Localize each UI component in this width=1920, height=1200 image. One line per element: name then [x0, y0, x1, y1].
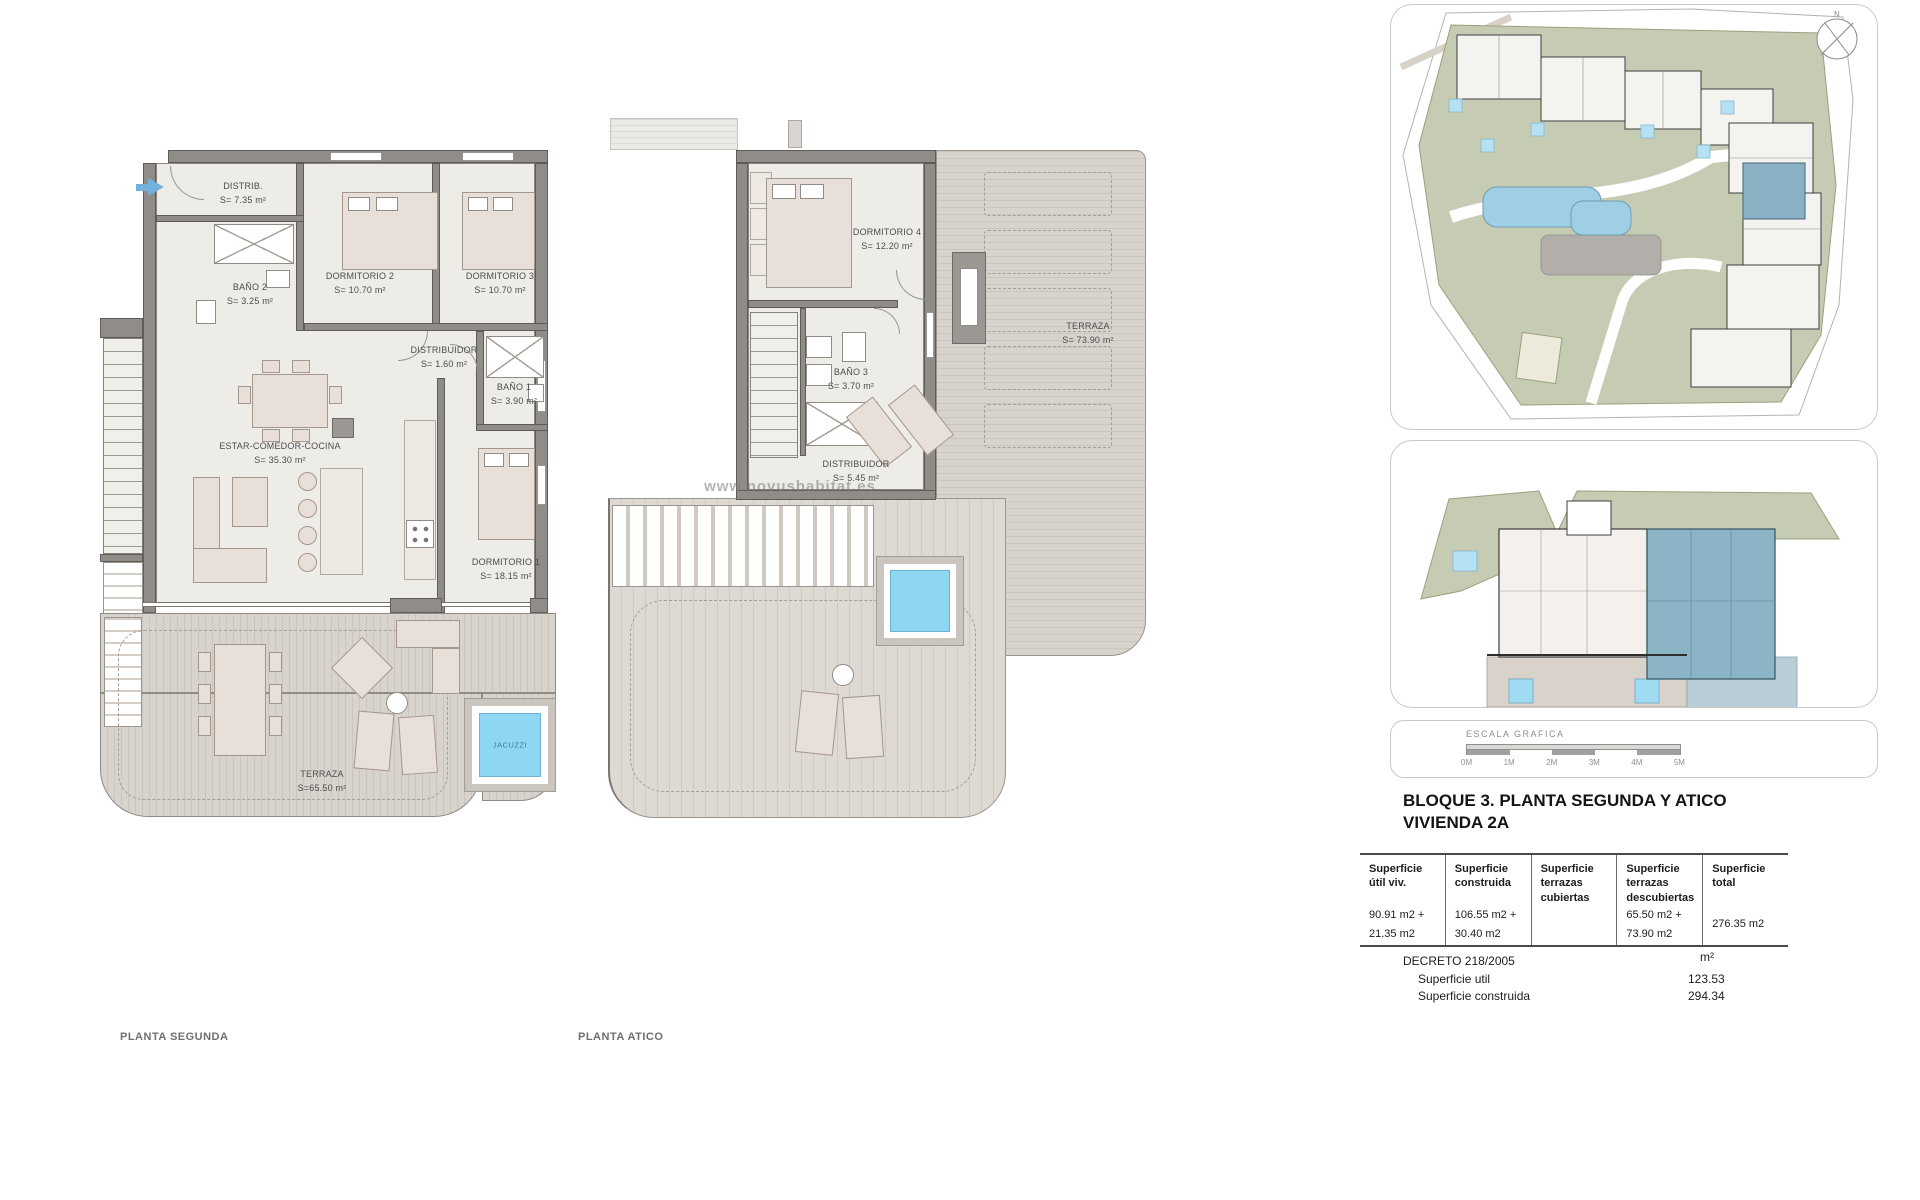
- table-header: Superficie terrazas descubiertas: [1626, 862, 1697, 906]
- scale-tick: 1M: [1504, 758, 1515, 767]
- scale-segment: [1552, 750, 1595, 755]
- decreto-row-label: Superficie construida: [1418, 989, 1530, 1003]
- table-values: 276.35 m2: [1712, 915, 1783, 934]
- sun-lounger: [795, 690, 839, 756]
- pillow: [772, 184, 796, 199]
- table-values: 65.50 m2 +73.90 m2: [1626, 906, 1697, 943]
- chimney: [788, 120, 802, 148]
- watermark: www.novushabitat.es: [704, 478, 876, 495]
- wall-segment: [736, 163, 748, 500]
- sun-lounger: [842, 695, 884, 759]
- svg-text:N: N: [1834, 10, 1840, 19]
- scale-segment: [1467, 750, 1510, 755]
- wall-segment: [736, 150, 936, 163]
- room-label-dormitorio4: DORMITORIO 4S= 12.20 m²: [853, 226, 921, 254]
- pergola-slats: [612, 505, 874, 587]
- pergola-dashed: [984, 230, 1112, 274]
- sink: [806, 336, 832, 358]
- compass-icon: N: [1817, 10, 1857, 59]
- scale-bar: [1466, 744, 1681, 755]
- scale-ticks: 0M 1M 2M 3M 4M 5M: [1461, 758, 1685, 767]
- site-highlight-unit: [1743, 163, 1805, 219]
- decreto-title: DECRETO 218/2005: [1403, 954, 1515, 968]
- site-kiosk: [1516, 332, 1562, 383]
- site-plan-drawing: N: [1391, 5, 1878, 430]
- table-values: 90.91 m2 +21.35 m2: [1369, 906, 1440, 943]
- scale-segment: [1637, 750, 1680, 755]
- table-column: Superficie construida 106.55 m2 +30.40 m…: [1446, 855, 1532, 945]
- block-small-pool: [1453, 551, 1477, 571]
- round-table: [832, 664, 854, 686]
- wall-segment: [748, 300, 898, 308]
- staircase: [750, 312, 798, 458]
- table-header: Superficie total: [1712, 862, 1783, 906]
- scale-title: ESCALA GRAFICA: [1466, 729, 1565, 739]
- block-plan-drawing: [1391, 441, 1878, 708]
- caption-planta-atico: PLANTA ATICO: [578, 1031, 663, 1043]
- scale-tick: 2M: [1546, 758, 1557, 767]
- scale-tick: 3M: [1589, 758, 1600, 767]
- room-label-bano3: BAÑO 3S= 3.70 m²: [828, 366, 874, 394]
- table-header: Superficie construida: [1455, 862, 1526, 906]
- pillow: [800, 184, 824, 199]
- scale-tick: 5M: [1674, 758, 1685, 767]
- window: [926, 312, 934, 358]
- pergola-dashed: [984, 172, 1112, 216]
- jacuzzi-water: [890, 570, 950, 632]
- scale-tick: 0M: [1461, 758, 1472, 767]
- decreto-unit: m²: [1700, 950, 1714, 964]
- scale-segment: [1510, 750, 1553, 755]
- decreto-row-value: 123.53: [1688, 972, 1725, 986]
- floorplan-planta-atico: DORMITORIO 4S= 12.20 m² BAÑO 3S= 3.70 m²…: [0, 0, 1200, 1100]
- caption-planta-segunda: PLANTA SEGUNDA: [120, 1031, 228, 1043]
- table-column: Superficie útil viv. 90.91 m2 +21.35 m2: [1360, 855, 1446, 945]
- table-column: Superficie terrazas descubiertas 65.50 m…: [1617, 855, 1703, 945]
- scale-bar-segments: [1467, 750, 1680, 755]
- decreto-row-label: Superficie util: [1418, 972, 1490, 986]
- surface-table: Superficie útil viv. 90.91 m2 +21.35 m2 …: [1360, 853, 1788, 947]
- table-header: Superficie terrazas cubiertas: [1541, 862, 1612, 906]
- decreto-row-value: 294.34: [1688, 989, 1725, 1003]
- table-values: 106.55 m2 +30.40 m2: [1455, 906, 1526, 943]
- planter-slot: [960, 268, 978, 326]
- scale-panel: ESCALA GRAFICA 0M 1M 2M 3M 4M 5M: [1390, 720, 1878, 778]
- toilet: [842, 332, 866, 362]
- pergola-dashed: [984, 404, 1112, 448]
- site-plan-panel: N: [1390, 4, 1878, 430]
- table-header: Superficie útil viv.: [1369, 862, 1440, 906]
- scale-tick: 4M: [1631, 758, 1642, 767]
- table-column: Superficie terrazas cubiertas: [1532, 855, 1618, 945]
- roof-hatch: [610, 118, 738, 150]
- pergola-dashed: [984, 346, 1112, 390]
- sheet-title-line1: BLOQUE 3. PLANTA SEGUNDA Y ATICO: [1403, 790, 1727, 812]
- sheet-title-line2: VIVIENDA 2A: [1403, 812, 1727, 834]
- scale-segment: [1595, 750, 1638, 755]
- sheet-title: BLOQUE 3. PLANTA SEGUNDA Y ATICO VIVIEND…: [1403, 790, 1727, 834]
- block-plan-panel: [1390, 440, 1878, 708]
- table-column: Superficie total 276.35 m2: [1703, 855, 1788, 945]
- room-label-terraza-atico: TERRAZAS= 73.90 m²: [1062, 320, 1113, 348]
